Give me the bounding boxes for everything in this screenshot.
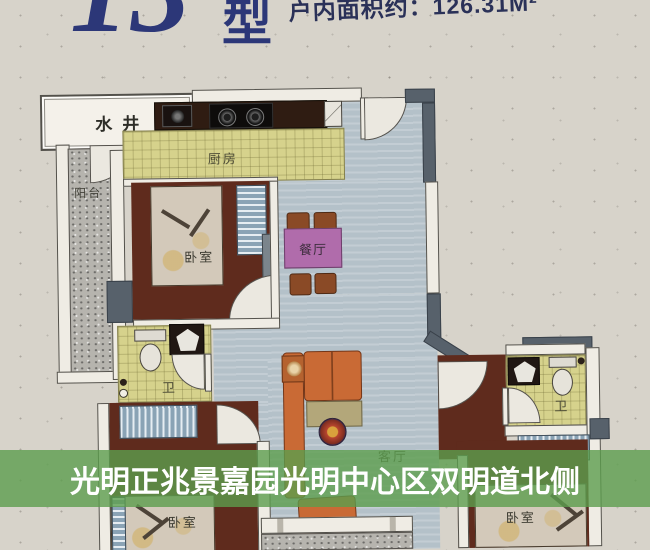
kitchen-stove: [209, 103, 273, 129]
bath-right-drain: [578, 357, 585, 364]
bedroom-bl-dresser: [119, 405, 197, 439]
sofa-main: [303, 350, 362, 401]
balcony-label: 阳台: [74, 184, 102, 201]
bath-left-door-leaf: [204, 354, 212, 392]
bed-fold-mark: [161, 209, 190, 229]
living-balcony-strip: [261, 532, 413, 550]
bath-left-shower: [169, 324, 204, 355]
bedroom-top-right-wall: [269, 181, 280, 321]
bath-right-toilet-bowl: [552, 369, 573, 396]
lamp: [287, 361, 302, 376]
wall-dark-left: [106, 281, 133, 323]
dining-table: 餐厅: [284, 228, 343, 269]
bath-right-label: 卫: [554, 396, 569, 415]
right-wall-dark: [422, 102, 436, 182]
bedroom-bl-label: 卧室: [168, 512, 198, 531]
bath-left-floor-drain: [120, 379, 127, 386]
dining-label: 餐厅: [299, 238, 327, 257]
bath-right-shower: [508, 357, 540, 385]
sink-basin: [171, 110, 184, 123]
unit-number: 13: [70, 0, 192, 60]
sofa-side-table: [282, 355, 305, 382]
kitchen-sink: [162, 105, 192, 127]
bath-left-toilet-bowl: [139, 343, 161, 371]
right-wall-white: [425, 181, 440, 293]
caption-banner: 光明正兆景嘉园光明中心区双明道北侧: [0, 450, 650, 507]
shower-tray: [514, 361, 536, 382]
bath-left-toilet-tank: [134, 329, 166, 341]
fridge: [324, 101, 342, 127]
dining-chair: [289, 273, 311, 295]
listing-photo: 13 型 户内面积约：126.31M² 水井 阳台: [0, 0, 650, 550]
bedroom-top-bed: 卧室: [150, 185, 223, 286]
stove-burner: [246, 108, 264, 126]
unit-type-suffix: 型: [222, 0, 272, 55]
bedroom-br-label: 卧室: [506, 507, 536, 526]
unit-area-text: 户内面积约：126.31M²: [288, 0, 538, 27]
corner-wall-dark: [405, 88, 435, 102]
right-wall-dark-piece: [589, 418, 609, 439]
kitchen-label: 厨房: [208, 148, 238, 167]
shower-tray: [176, 329, 199, 351]
stove-burner: [218, 108, 236, 126]
caption-text: 光明正兆景嘉园光明中心区双明道北侧: [70, 457, 580, 501]
dining-chair: [314, 273, 336, 294]
bed-fold-mark: [189, 208, 210, 237]
bath-right-toilet-tank: [549, 356, 577, 367]
bedroom-top-label: 卧室: [184, 247, 214, 266]
bath-left-fixture: [119, 389, 128, 398]
bath-left-label: 卫: [162, 377, 177, 396]
